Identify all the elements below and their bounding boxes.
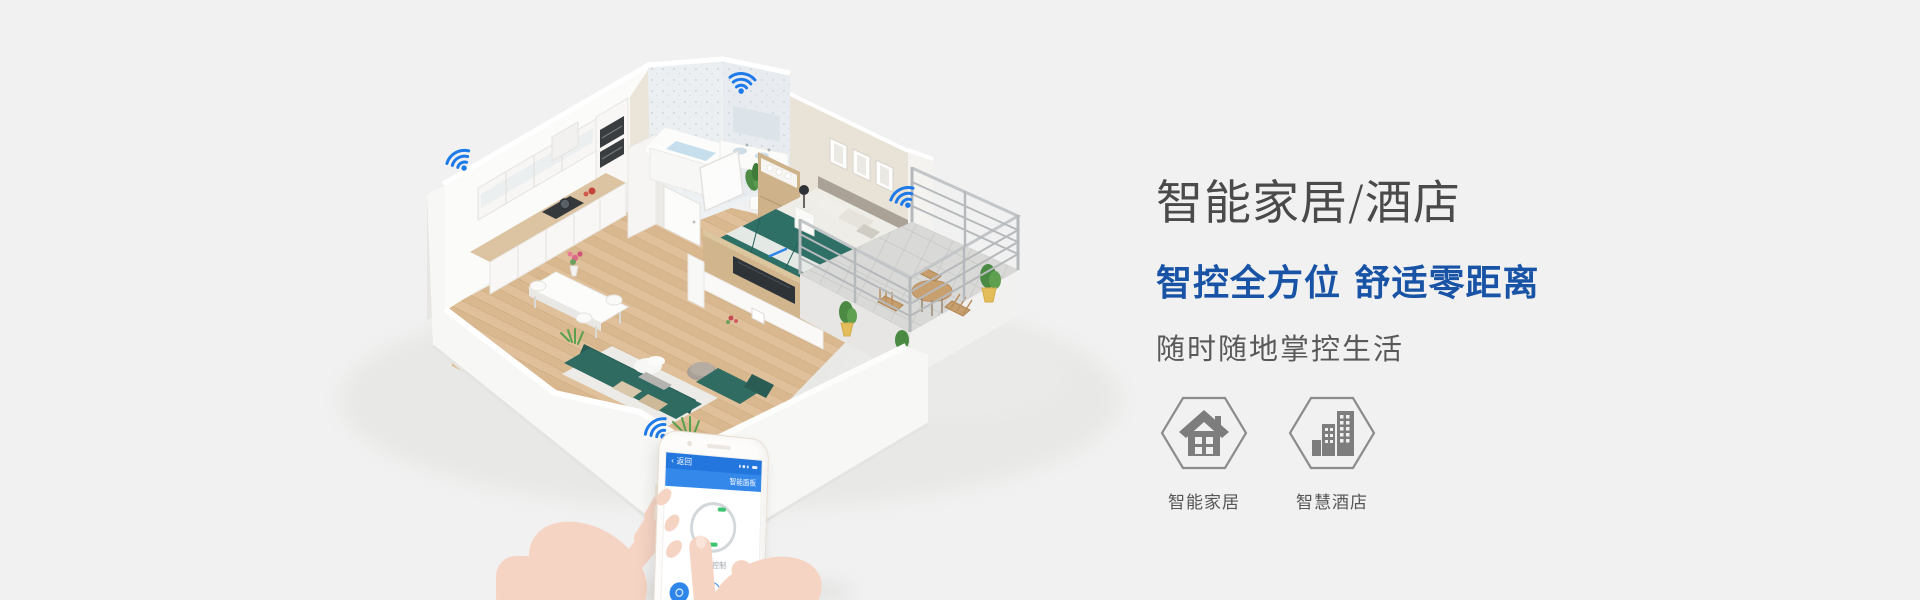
mode-icon <box>708 588 716 596</box>
status-icons <box>738 465 757 470</box>
page-subtitle: 智控全方位 舒适零距离 <box>1156 254 1540 306</box>
page-title: 智能家居/酒店 <box>1156 164 1540 233</box>
dial-caption: 环境控制 <box>662 559 758 571</box>
app-back-button: ‹ 返回 <box>671 455 692 468</box>
volume-button <box>655 484 658 499</box>
smart-home-hexagon-icon <box>1158 390 1250 480</box>
dial-green-dot <box>709 542 717 546</box>
page-tagline: 随时随地掌控生活 <box>1156 326 1540 368</box>
table-lamp <box>799 185 809 195</box>
buildings-icon <box>1312 411 1354 456</box>
timer-button <box>733 582 751 600</box>
mode-button <box>702 582 721 600</box>
category-label: 智能家居 <box>1152 488 1256 513</box>
phone-camera <box>687 441 692 447</box>
dial-green-tick <box>718 507 726 511</box>
volume-button <box>654 505 657 520</box>
timer-icon <box>738 588 745 596</box>
phone-earpiece <box>707 444 731 450</box>
control-dial <box>689 501 737 553</box>
app-buttons-row: 开关 模式 定时 <box>661 582 758 600</box>
power-icon <box>675 588 683 596</box>
fruit-bowl <box>589 188 596 195</box>
phone-mockup: ‹ 返回 智能面板 环境控制 开关 <box>652 428 769 600</box>
smart-hotel-hexagon-icon <box>1286 390 1378 480</box>
category-smart-home[interactable]: 智能家居 <box>1152 390 1256 513</box>
app-body: 环境控制 开关 模式 定时 <box>661 486 761 600</box>
hero-banner: ‹ 返回 智能面板 环境控制 开关 <box>0 0 1920 600</box>
house-icon <box>1179 410 1229 456</box>
smart-home-illustration <box>0 0 1920 600</box>
category-badges: 智能家居 <box>1152 390 1384 513</box>
app-title: 智能面板 <box>729 476 756 489</box>
hero-text-block: 智能家居/酒店 智控全方位 舒适零距离 随时随地掌控生活 <box>1156 164 1540 368</box>
power-button <box>669 582 689 600</box>
category-smart-hotel[interactable]: 智慧酒店 <box>1280 390 1384 513</box>
category-label: 智慧酒店 <box>1280 488 1384 513</box>
phone-screen: ‹ 返回 智能面板 环境控制 开关 <box>660 451 763 600</box>
